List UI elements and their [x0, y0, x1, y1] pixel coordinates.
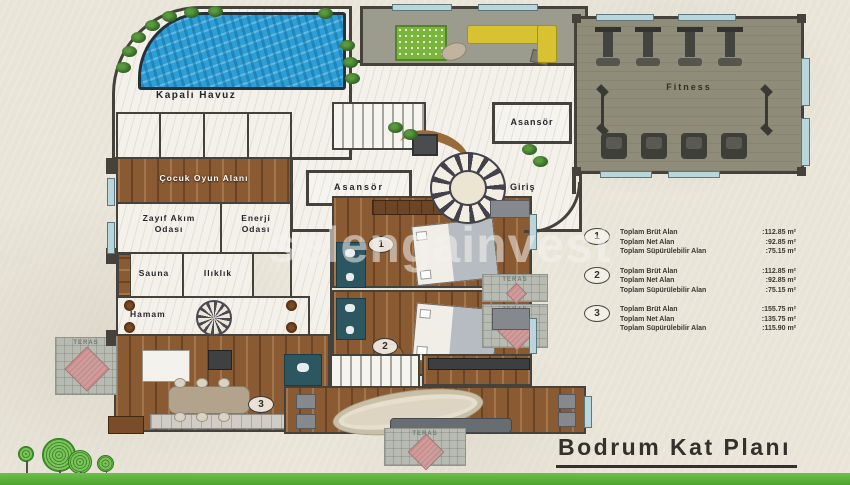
- plant-icon: [145, 20, 160, 31]
- treadmill-icon: [685, 31, 695, 57]
- bathroom: [336, 298, 366, 340]
- legend-value: :135.75 m²: [762, 315, 796, 325]
- legend-value: :75.15 m²: [766, 286, 796, 296]
- terrace-right-upper: TERAS: [482, 274, 548, 302]
- plant-icon: [345, 73, 360, 84]
- area-legend: 1 Toplam Brüt Alan:112.85 m² Toplam Net …: [584, 228, 802, 334]
- plant-icon: [343, 57, 358, 68]
- window: [668, 171, 720, 178]
- terrace-bottom-label: TERAS: [385, 431, 465, 437]
- pool: [138, 12, 346, 90]
- closet: [490, 200, 530, 218]
- terrace-right-upper-label: TERAS: [483, 277, 547, 283]
- fitness-label: Fitness: [574, 82, 804, 92]
- plant-icon: [340, 40, 355, 51]
- window: [529, 318, 537, 354]
- legend-rows: Toplam Brüt Alan:112.85 m² Toplam Net Al…: [620, 267, 796, 296]
- chair: [196, 412, 208, 422]
- treadmill-icon: [725, 31, 735, 57]
- legend-value: :155.75 m²: [762, 305, 796, 315]
- plant-icon: [131, 32, 146, 43]
- bathroom: [336, 242, 366, 288]
- hamam-basin: [124, 322, 135, 333]
- legend-rows: Toplam Brüt Alan:112.85 m² Toplam Net Al…: [620, 228, 796, 257]
- legend-item-1: 1 Toplam Brüt Alan:112.85 m² Toplam Net …: [584, 228, 802, 257]
- window: [584, 396, 592, 428]
- rosette-center: [449, 170, 486, 205]
- wood-box: [108, 416, 144, 434]
- spiral-tree-icon: [18, 446, 34, 462]
- lounge: [360, 6, 588, 66]
- sink-icon: [346, 326, 354, 334]
- toilet-icon: [297, 363, 309, 372]
- page-title: Bodrum Kat Planı: [556, 434, 797, 468]
- plant-icon: [522, 144, 537, 155]
- terrace-bottom: TERAS: [384, 428, 466, 466]
- gym-machine-icon: [601, 133, 627, 159]
- legend-label: Toplam Net Alan: [620, 276, 766, 286]
- chair: [196, 378, 208, 388]
- chair: [218, 412, 230, 422]
- plant-icon: [318, 8, 333, 19]
- unit3-badge: 3: [248, 396, 274, 413]
- hamam-basin: [286, 300, 297, 311]
- plant-icon: [208, 6, 223, 17]
- stairs-lower: [330, 354, 420, 388]
- wall: [203, 114, 205, 157]
- unit1-badge: 1: [368, 236, 394, 253]
- legend-row: Toplam Süpürülebilir Alan:115.90 m²: [620, 324, 796, 334]
- weight-stand-icon: [765, 91, 768, 129]
- fitness-room: [574, 16, 804, 174]
- kitchen-island: [142, 350, 190, 382]
- window: [529, 214, 537, 250]
- living-bottom: [284, 386, 586, 434]
- armchair: [296, 414, 316, 429]
- sink-icon: [346, 273, 354, 281]
- window: [801, 118, 810, 166]
- legend-label: Toplam Net Alan: [620, 315, 762, 325]
- legend-label: Toplam Net Alan: [620, 238, 766, 248]
- stove: [208, 350, 232, 370]
- legend-label: Toplam Süpürülebilir Alan: [620, 286, 766, 296]
- plant-icon: [162, 11, 177, 22]
- legend-label: Toplam Brüt Alan: [620, 228, 762, 238]
- energy-label-line2: Odası: [220, 224, 292, 234]
- legend-row: Toplam Net Alan:92.85 m²: [620, 276, 796, 286]
- legend-row: Toplam Brüt Alan:112.85 m²: [620, 228, 796, 238]
- toilet-icon: [345, 304, 355, 312]
- pillow: [419, 309, 431, 319]
- plant-icon: [122, 46, 137, 57]
- low-current-label-line2: Odası: [116, 224, 222, 234]
- legend-label: Toplam Brüt Alan: [620, 305, 762, 315]
- legend-badge-3: 3: [584, 305, 610, 322]
- armchair: [296, 394, 316, 409]
- unit2-badge: 2: [372, 338, 398, 355]
- column: [106, 330, 116, 346]
- legend-row: Toplam Net Alan:92.85 m²: [620, 238, 796, 248]
- game-table: [395, 25, 447, 61]
- window: [600, 171, 652, 178]
- spiral-tree-icon: [97, 455, 114, 472]
- window: [107, 178, 115, 206]
- legend-label: Toplam Süpürülebilir Alan: [620, 324, 762, 334]
- legend-row: Toplam Süpürülebilir Alan:75.15 m²: [620, 247, 796, 257]
- legend-badge-2: 2: [584, 267, 610, 284]
- hamam-mosaic: [196, 300, 232, 336]
- window: [678, 14, 736, 21]
- low-current-label-line1: Zayıf Akım: [116, 213, 222, 223]
- green-footer-stripe: [0, 473, 850, 485]
- legend-value: :92.85 m²: [766, 238, 796, 248]
- wall: [247, 114, 249, 157]
- legend-label: Toplam Süpürülebilir Alan: [620, 247, 766, 257]
- elevator-2-label: Asansör: [492, 117, 572, 127]
- legend-value: :112.85 m²: [762, 267, 796, 277]
- play-room-label: Çocuk Oyun Alanı: [116, 173, 292, 183]
- spiral-tree-icon: [68, 450, 92, 474]
- plant-icon: [116, 62, 131, 73]
- legend-value: :112.85 m²: [762, 228, 796, 238]
- toilet-icon: [345, 249, 355, 257]
- window: [478, 4, 538, 11]
- treadmill-icon: [603, 31, 613, 57]
- legend-badge-1: 1: [584, 228, 610, 245]
- legend-rows: Toplam Brüt Alan:155.75 m² Toplam Net Al…: [620, 305, 796, 334]
- service-room: [422, 354, 532, 386]
- legend-row: Toplam Net Alan:135.75 m²: [620, 315, 796, 325]
- pillow: [416, 231, 428, 241]
- legend-value: :115.90 m²: [762, 324, 796, 334]
- wc-bottom: [284, 354, 322, 386]
- column: [797, 167, 806, 176]
- dining-table: [168, 386, 250, 414]
- gym-machine-icon: [721, 133, 747, 159]
- armchair: [558, 394, 576, 409]
- pillow: [420, 270, 432, 280]
- treadmill-icon: [643, 31, 653, 57]
- pool-label: Kapalı Havuz: [156, 90, 236, 101]
- window: [107, 222, 115, 254]
- terrace-hatch: [408, 434, 445, 471]
- weight-stand-icon: [601, 91, 604, 129]
- plant-icon: [403, 129, 418, 140]
- elevator-1-label: Asansör: [306, 182, 412, 192]
- legend-row: Toplam Süpürülebilir Alan:75.15 m²: [620, 286, 796, 296]
- sofa: [492, 308, 530, 330]
- blanket: [448, 219, 498, 281]
- gym-machine-icon: [681, 133, 707, 159]
- sauna-label: Sauna: [124, 268, 184, 278]
- plant-icon: [184, 7, 199, 18]
- legend-item-2: 2 Toplam Brüt Alan:112.85 m² Toplam Net …: [584, 267, 802, 296]
- floor-plan-page: Kapalı Havuz Çocuk Oyun Alanı Zayıf Akım…: [0, 0, 850, 485]
- entrance-label: Giriş: [510, 182, 536, 192]
- column: [572, 167, 581, 176]
- legend-item-3: 3 Toplam Brüt Alan:155.75 m² Toplam Net …: [584, 305, 802, 334]
- legend-value: :92.85 m²: [766, 276, 796, 286]
- energy-label-line1: Enerji: [220, 213, 292, 223]
- column: [106, 158, 116, 174]
- terrace-hatch: [506, 283, 527, 304]
- legend-row: Toplam Brüt Alan:155.75 m²: [620, 305, 796, 315]
- column: [572, 14, 581, 23]
- armchair: [558, 412, 576, 427]
- chair: [218, 378, 230, 388]
- hamam-basin: [286, 322, 297, 333]
- window: [392, 4, 452, 11]
- warm-room-label: Ilıklık: [182, 268, 254, 278]
- counter-dark: [428, 358, 530, 370]
- gym-machine-icon: [641, 133, 667, 159]
- legend-value: :75.15 m²: [766, 247, 796, 257]
- column: [797, 14, 806, 23]
- legend-label: Toplam Brüt Alan: [620, 267, 762, 277]
- chair: [174, 412, 186, 422]
- hamam-label: Hamam: [130, 309, 166, 319]
- chair: [174, 378, 186, 388]
- terrace-left-hatch: [64, 346, 109, 391]
- plant-icon: [533, 156, 548, 167]
- legend-row: Toplam Brüt Alan:112.85 m²: [620, 267, 796, 277]
- window: [596, 14, 654, 21]
- wall: [159, 114, 161, 157]
- sofa-yellow-corner: [537, 25, 557, 63]
- plant-icon: [388, 122, 403, 133]
